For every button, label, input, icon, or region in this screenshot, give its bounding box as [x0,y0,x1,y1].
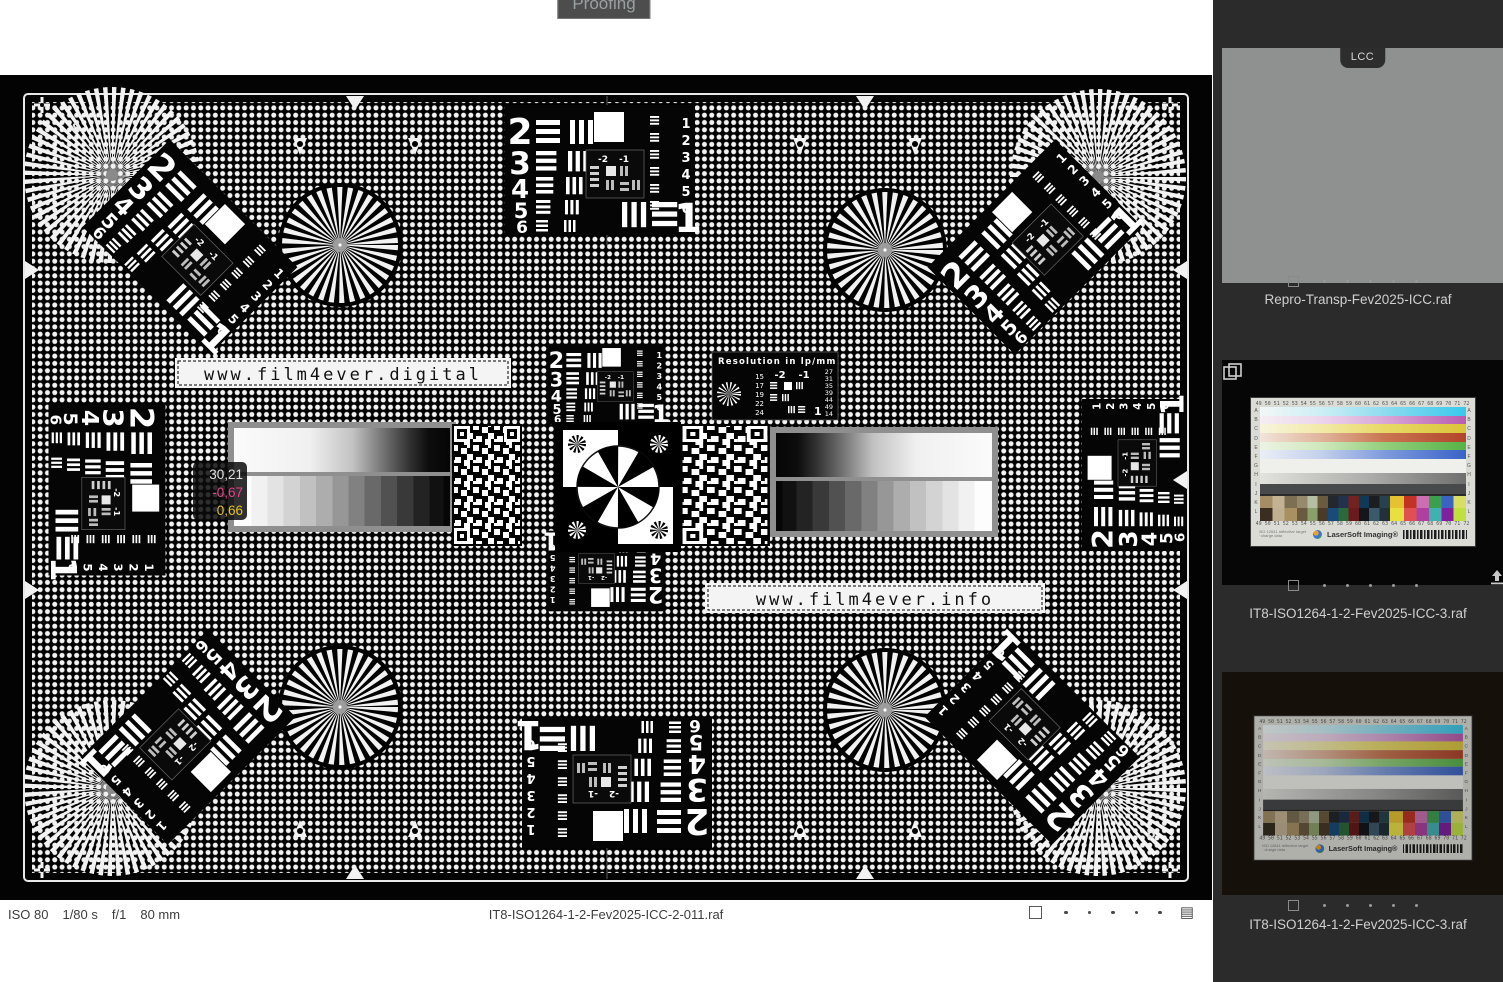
variants-icon [1223,363,1243,381]
rating-dot[interactable] [1088,911,1092,915]
readout-l-value: 30,21 [209,467,243,482]
current-filename: IT8-ISO1264-1-2-Fev2025-ICC-2-011.raf [489,907,724,922]
lab-readout: 30,21 -0,67 0,66 [193,462,247,520]
svg-text:15: 15 [755,373,764,381]
proofing-button[interactable]: Proofing [557,0,650,19]
thumbnail-it8[interactable]: 49 50 51 52 53 54 55 56 57 58 59 60 61 6… [1222,360,1503,585]
thumbnail-lcc[interactable]: LCC [1222,48,1503,283]
rating-dot[interactable] [1415,280,1418,283]
svg-text:24: 24 [755,409,764,417]
it8-row-letters: A B C D E F G H I J K L [1462,725,1469,836]
rating-dot[interactable] [1392,280,1395,283]
rating-dot[interactable] [1323,904,1326,907]
resolution-lpmm-box: Resolution in lp/mm 15 17 19 22 24 27 31… [712,352,838,420]
rating-dot[interactable] [1064,911,1068,915]
thumbnail-filename: IT8-ISO1264-1-2-Fev2025-ICC-3.raf [1213,917,1503,932]
filmstrip-cell: 49 50 51 52 53 54 55 56 57 58 59 60 61 6… [1213,672,1503,982]
center-pinwheel-target [555,422,681,552]
aperture-value: f/1 [112,907,126,922]
rating-dot[interactable] [1323,584,1326,587]
url-strip-info: www.film4ever.info [705,583,1045,613]
it8-brand-text: LaserSoft Imaging® [1327,530,1398,539]
frame-mark: 8 [72,120,80,137]
readout-b-value: 0,66 [217,503,243,518]
color-tag-icon[interactable] [1288,276,1299,287]
filmstrip-panel: LCC Repro-Transp-Fev2025-ICC.raf 49 50 5… [1213,0,1503,982]
rating-dot[interactable] [1323,280,1326,283]
color-tag-icon[interactable] [1288,900,1299,911]
shutter-value: 1/80 s [62,907,97,922]
it8-brand-text: LaserSoft Imaging® [1328,844,1397,853]
rating-dot[interactable] [1415,904,1418,907]
frame-mark: 8 [1147,825,1155,842]
viewer-image[interactable]: 2 3 4 5 6 -2 -1 [0,75,1212,900]
it8-color-bands [1263,725,1463,836]
rating-dot[interactable] [1346,280,1349,283]
thumbnail-filename: IT8-ISO1264-1-2-Fev2025-ICC-3.raf [1213,606,1503,621]
rating-dot[interactable] [1392,904,1395,907]
it8-bottom-numbers: 49 50 51 52 53 54 55 56 57 58 59 60 61 6… [1253,521,1473,527]
lasersoft-logo-icon [1313,530,1322,539]
svg-text:14: 14 [825,410,833,418]
url-strip-digital: www.film4ever.digital [175,358,511,388]
rating-dot[interactable] [1415,584,1418,587]
list-view-icon[interactable]: ▤ [1180,906,1194,919]
filmstrip-cell: 49 50 51 52 53 54 55 56 57 58 59 60 61 6… [1213,360,1503,672]
iso-value: ISO 80 [8,907,48,922]
it8-fineprint: ISO 12641 reflective target · charge dat… [1262,844,1310,853]
svg-text:Resolution in lp/mm: Resolution in lp/mm [718,357,837,367]
it8-row-letters: A B C D E F G H I J K L [1466,407,1473,521]
it8-color-bands [1260,407,1466,521]
rating-dot[interactable] [1346,584,1349,587]
it8-chart-thumb: 49 50 51 52 53 54 55 56 57 58 59 60 61 6… [1251,398,1475,546]
status-bar: ISO 80 1/80 s f/1 80 mm IT8-ISO1264-1-2-… [0,900,1212,930]
rating-dot[interactable] [1392,584,1395,587]
svg-text:www.film4ever.info: www.film4ever.info [756,590,994,610]
lcc-badge: LCC [1340,48,1386,68]
exif-info: ISO 80 1/80 s f/1 80 mm [8,907,180,922]
rating-dot[interactable] [1346,904,1349,907]
filmstrip-cell: LCC Repro-Transp-Fev2025-ICC.raf [1213,0,1503,360]
thumbnail-it8-dark[interactable]: 49 50 51 52 53 54 55 56 57 58 59 60 61 6… [1222,672,1503,895]
focal-length-value: 80 mm [140,907,180,922]
color-tag-icon[interactable] [1288,580,1299,591]
rating-dot[interactable] [1369,904,1372,907]
rating-dot[interactable] [1135,911,1139,915]
barcode-icon [1402,844,1464,853]
it8-bottom-numbers: 49 50 51 52 53 54 55 56 57 58 59 60 61 6… [1256,836,1469,842]
readout-a-value: -0,67 [212,485,243,500]
svg-text:www.film4ever.digital: www.film4ever.digital [204,365,482,385]
color-tag-icon[interactable] [1029,906,1042,919]
it8-row-letters: A B C D E F G H I J K L [1256,725,1263,836]
it8-row-letters: A B C D E F G H I J K L [1253,407,1260,521]
it8-fineprint: ISO 12641 reflective target · charge dat… [1259,530,1309,539]
svg-text:19: 19 [755,391,764,399]
thumbnail-filename: Repro-Transp-Fev2025-ICC.raf [1213,292,1503,307]
lasersoft-logo-icon [1315,844,1324,853]
rating-dot[interactable] [1158,911,1162,915]
rating-dot[interactable] [1369,280,1372,283]
svg-text:22: 22 [755,400,764,408]
barcode-icon [1403,530,1467,539]
it8-chart-thumb: 49 50 51 52 53 54 55 56 57 58 59 60 61 6… [1254,716,1471,860]
rating-dot[interactable] [1111,911,1115,915]
svg-text:-2: -2 [774,370,785,381]
svg-text:17: 17 [755,382,764,390]
svg-text:-1: -1 [798,370,809,381]
svg-text:1: 1 [814,405,822,418]
rating-dot[interactable] [1369,584,1372,587]
